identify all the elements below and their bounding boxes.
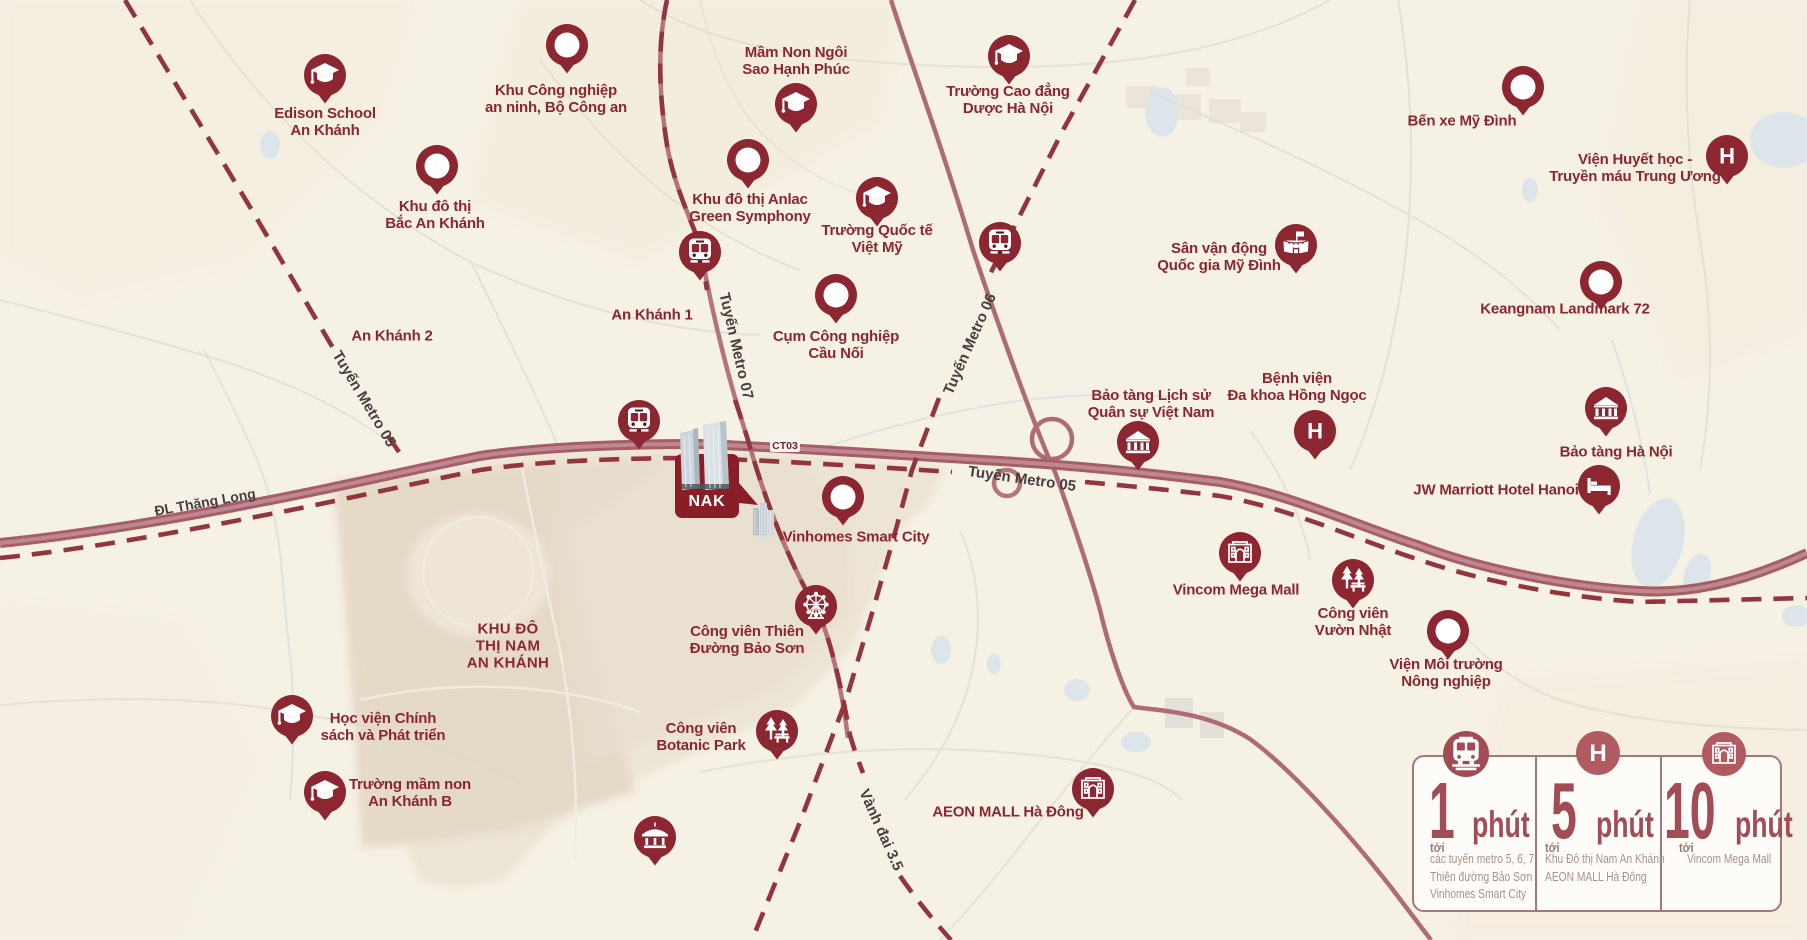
svg-text:NAK: NAK	[688, 493, 725, 510]
svg-text:CT03: CT03	[772, 440, 798, 452]
